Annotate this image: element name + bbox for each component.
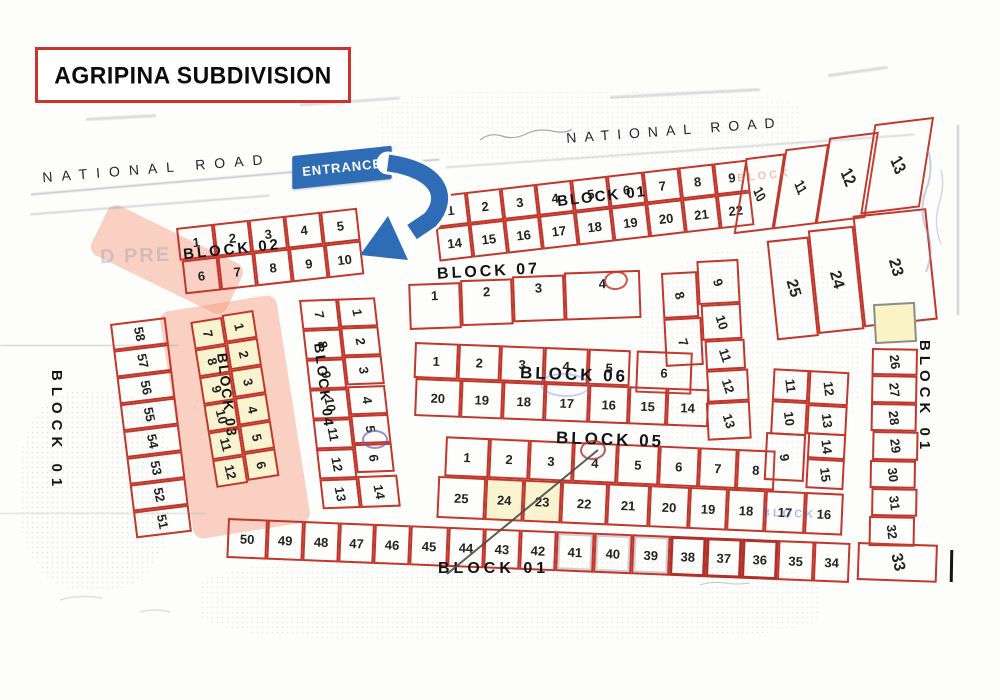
block01_south-lot-37: 37: [705, 537, 743, 578]
block05-lot-2: 2: [488, 438, 530, 480]
lot-number: 19: [701, 501, 716, 517]
block04-lot-14: 14: [357, 475, 401, 508]
lot-number: 10: [712, 313, 731, 331]
lot-number: 23: [535, 494, 550, 510]
block05-lot-11: 11: [772, 368, 810, 402]
lot-number: 36: [752, 552, 767, 568]
block01_east-lot-26: 26: [872, 348, 918, 376]
block05-lot-21: 21: [606, 483, 650, 527]
block05-lot-6: 6: [658, 446, 700, 488]
lot-number: 33: [887, 552, 909, 573]
lot-number: 2: [483, 284, 491, 299]
lot-number: 51: [154, 513, 172, 530]
lot-number: 8: [672, 289, 689, 301]
lot-number: 18: [738, 503, 753, 519]
block01_south-lot-47: 47: [338, 522, 375, 563]
block01_south-lot-49: 49: [266, 520, 304, 561]
block05-lot-22: 22: [560, 481, 608, 525]
block07-lot-3: 3: [512, 275, 566, 323]
lot-number: 3: [356, 366, 372, 375]
lot-number: 13: [819, 412, 836, 428]
block01_east-lot-30: 30: [870, 460, 916, 489]
block01_north-lot-2: 2: [466, 188, 504, 224]
lot-number: 54: [144, 433, 162, 450]
lot-number: 15: [817, 466, 834, 482]
block01_south-lot-33: 33: [857, 542, 938, 583]
lot-number: 14: [370, 483, 388, 499]
block01_south-lot-39: 39: [631, 534, 671, 575]
lot-number: 38: [680, 549, 695, 565]
lot-number: 1: [432, 353, 440, 368]
lot-number: 3: [240, 376, 256, 387]
lot-number: 42: [530, 543, 545, 559]
unlabeled-yellow-lot: [873, 302, 917, 344]
block02-lot-9: 9: [289, 245, 329, 283]
lot-number: 9: [727, 170, 736, 186]
lot-number: 2: [505, 451, 513, 466]
block01_north-lot-15: 15: [469, 220, 508, 258]
lot-number: 13: [331, 486, 349, 502]
block01_north-lot-18: 18: [575, 208, 615, 246]
lot-number: 16: [816, 506, 831, 522]
block06-lot-14: 14: [666, 388, 709, 428]
lot-number: 19: [474, 392, 489, 408]
block06-lot-13: 13: [706, 401, 752, 441]
lot-number: 2: [481, 198, 490, 214]
lot-number: 4: [359, 396, 375, 405]
lot-number: 20: [430, 390, 445, 406]
lot-number: 1: [431, 288, 439, 303]
block01_west-lot-51: 51: [133, 505, 192, 539]
lot-number: 27: [886, 381, 903, 397]
lot-number: 56: [137, 379, 155, 396]
map-title-box: AGRIPINA SUBDIVISION: [35, 47, 351, 103]
lot-number: 2: [353, 337, 369, 346]
block05-label: BLOCK 05: [556, 428, 665, 452]
watermark-fragment-gray: D PRE: [100, 244, 172, 269]
lot-number: 13: [719, 411, 738, 429]
block04-lot-2: 2: [340, 326, 381, 356]
block01_south-lot-46: 46: [373, 524, 411, 565]
lot-number: 4: [245, 404, 261, 415]
block05-lot-14: 14: [807, 432, 846, 460]
block01_south-lot-41: 41: [555, 531, 595, 572]
block07-lot-2: 2: [460, 278, 514, 326]
lot-number: 37: [716, 550, 731, 566]
block01_south-lot-48: 48: [302, 521, 340, 562]
block04-lot-7: 7: [299, 299, 340, 330]
lot-number: 25: [782, 277, 804, 299]
lot-number: 34: [824, 554, 839, 570]
block01_north-lot-8: 8: [678, 163, 716, 199]
block01_north-lot-20: 20: [646, 199, 686, 237]
block01_north-lot-7: 7: [643, 167, 682, 203]
block05-lot-10: 10: [770, 400, 808, 436]
block01_north-lot-3: 3: [501, 184, 539, 220]
lot-number: 10: [781, 410, 798, 426]
lot-number: 44: [458, 540, 473, 556]
block06-lot-16: 16: [588, 385, 629, 425]
lot-number: 11: [325, 426, 343, 441]
lot-number: 7: [312, 310, 328, 319]
block06-lot-15: 15: [628, 386, 667, 425]
block05-lot-20: 20: [648, 485, 690, 529]
lot-number: 7: [200, 328, 216, 339]
block06-lot-20: 20: [414, 378, 461, 418]
lot-number: 39: [643, 547, 658, 563]
lot-number: 32: [883, 523, 900, 539]
lot-number: 10: [337, 251, 353, 268]
lot-number: 30: [884, 466, 901, 482]
map-title: AGRIPINA SUBDIVISION: [54, 61, 332, 89]
lot-number: 23: [884, 257, 906, 279]
block01_east-lot-31: 31: [871, 488, 917, 517]
block01_north-lot-19: 19: [611, 203, 651, 241]
block01_east-lot-28: 28: [871, 403, 917, 432]
block05-lot-7: 7: [698, 447, 738, 489]
lot-number: 15: [481, 230, 497, 247]
block04-lot-13: 13: [319, 478, 360, 509]
lot-number: 17: [559, 395, 574, 411]
lot-number: 5: [336, 218, 345, 234]
lot-number: 1: [349, 308, 365, 317]
lot-number: 47: [349, 535, 364, 551]
lot-number: 55: [140, 406, 158, 423]
lot-number: 13: [886, 153, 909, 179]
block01_north-lot-14: 14: [436, 224, 474, 262]
lot-number: 26: [886, 354, 903, 370]
lot-number: 9: [710, 276, 727, 288]
lot-number: 1: [231, 321, 247, 332]
lot-number: 20: [662, 499, 677, 515]
block01_south-lot-38: 38: [669, 536, 707, 577]
lot-number: 29: [887, 438, 904, 454]
block06-lot-18: 18: [502, 381, 545, 421]
lot-number: 20: [658, 210, 674, 227]
block05-lot-23: 23: [522, 480, 562, 524]
lot-number: 12: [719, 376, 738, 394]
lot-number: 18: [587, 218, 603, 235]
block06-lot-2: 2: [458, 344, 501, 382]
block01_east-lot-27: 27: [871, 375, 917, 404]
lot-number: 2: [475, 355, 483, 370]
block06-lot-8: 8: [661, 271, 699, 319]
block06-lot-12: 12: [706, 369, 750, 403]
block02-lot-5: 5: [320, 208, 360, 245]
lot-number: 6: [366, 453, 382, 462]
lot-number: 24: [497, 492, 512, 508]
block01_north-lot-16: 16: [504, 216, 543, 254]
lot-number: 40: [605, 546, 620, 562]
block06-lot-11: 11: [705, 339, 747, 371]
block01-east-label: BLOCK 01: [916, 340, 933, 454]
block05-lot-24: 24: [484, 478, 524, 522]
block02-lot-4: 4: [284, 212, 323, 249]
lot-number: 12: [328, 456, 346, 472]
lot-number: 14: [446, 234, 462, 251]
block06-lot-10: 10: [701, 303, 743, 341]
block01_east-lot-29: 29: [872, 431, 918, 461]
block01_south-lot-35: 35: [777, 540, 815, 581]
lot-number: 57: [134, 352, 152, 369]
purple-circle-marker-block04: [362, 430, 388, 449]
lot-number: 3: [547, 453, 555, 468]
block05-lot-9: 9: [764, 432, 806, 482]
lot-number: 4: [300, 222, 309, 238]
lot-number: 11: [716, 346, 735, 364]
lot-number: 46: [385, 537, 400, 553]
block01_north-lot-21: 21: [682, 195, 721, 233]
lot-number: 7: [675, 336, 692, 348]
lot-number: 45: [422, 538, 437, 554]
block06-lot-19: 19: [460, 380, 503, 420]
lot-number: 3: [515, 194, 524, 210]
lot-number: 12: [836, 165, 859, 191]
lot-number: 49: [278, 533, 293, 549]
lot-number: 6: [660, 365, 668, 380]
lot-number: 7: [658, 178, 667, 194]
block01_south-lot-36: 36: [741, 539, 779, 580]
block04-lot-4: 4: [347, 385, 388, 415]
lot-number: 11: [792, 176, 811, 197]
block02-lot-10: 10: [325, 241, 365, 279]
block06-lot-7: 7: [663, 317, 703, 367]
block05-lot-15: 15: [805, 458, 845, 490]
lot-number: 21: [693, 206, 709, 223]
lot-number: 52: [150, 486, 168, 503]
lot-number: 8: [693, 174, 702, 190]
lot-number: 21: [621, 497, 636, 513]
lot-number: 15: [640, 398, 655, 414]
block03-lot-12: 12: [212, 455, 248, 488]
block01_north-lot-17: 17: [539, 212, 579, 250]
block04-lot-1: 1: [337, 297, 378, 327]
lot-number: 17: [551, 222, 567, 239]
block01-south-label: BLOCK 01: [438, 560, 549, 578]
lot-number: 6: [197, 268, 206, 284]
block07-lot-1: 1: [408, 282, 462, 330]
lot-number: 35: [788, 553, 803, 569]
lot-number: 3: [535, 280, 543, 295]
block05-lot-13: 13: [806, 404, 848, 436]
scan-edge-line: [957, 125, 959, 315]
lot-number: 5: [249, 432, 265, 443]
watermark-fragment-blue: BLOCK: [762, 507, 816, 521]
lot-number: 9: [304, 256, 313, 272]
block01_east-lot-32: 32: [869, 516, 916, 547]
lot-number: 50: [240, 531, 255, 547]
lot-number: 31: [886, 494, 903, 510]
lot-number: 48: [314, 534, 329, 550]
lot-number: 7: [233, 264, 242, 280]
lot-number: 16: [516, 226, 532, 243]
lot-number: 14: [818, 438, 835, 454]
block07-lot-4: 4: [564, 270, 642, 321]
lot-number: 22: [577, 496, 592, 512]
lot-number: 11: [782, 377, 799, 392]
scale-tick-mark: [950, 550, 954, 582]
block04-lot-12: 12: [316, 448, 357, 479]
lot-number: 19: [622, 214, 638, 231]
lot-number: 8: [269, 260, 278, 276]
block03-lot-6: 6: [244, 448, 280, 481]
block05-lot-19: 19: [688, 487, 728, 531]
block01_south-lot-40: 40: [593, 533, 633, 574]
lot-number: 1: [446, 202, 455, 218]
block05-lot-1: 1: [444, 436, 490, 478]
lot-number: 1: [463, 450, 471, 465]
lot-number: 12: [221, 463, 239, 481]
lot-number: 9: [777, 453, 793, 462]
block05-lot-25: 25: [436, 476, 486, 520]
lot-number: 28: [885, 409, 902, 425]
lot-number: 6: [253, 459, 269, 470]
scanned-plat-page: 1234567891012345678914151617181920212210…: [0, 0, 1000, 700]
lot-number: 5: [634, 457, 642, 472]
lot-number: 6: [675, 459, 683, 474]
block05-lot-18: 18: [726, 489, 766, 533]
lot-number: 7: [714, 460, 722, 475]
lot-number: 18: [516, 393, 531, 409]
lot-number: 58: [131, 325, 149, 342]
block01_south-lot-34: 34: [813, 542, 851, 583]
lot-number: 41: [567, 544, 582, 560]
block04-lot-3: 3: [344, 355, 385, 385]
block06-lot-1: 1: [414, 342, 459, 380]
lot-number: 2: [236, 349, 252, 360]
lot-number: 16: [601, 397, 616, 413]
block01_south-lot-50: 50: [226, 518, 268, 560]
lot-number: 24: [825, 269, 847, 291]
lot-number: 12: [820, 380, 837, 396]
lot-number: 14: [680, 400, 695, 416]
entrance-banner-text: ENTRANCE: [301, 156, 382, 179]
block06-lot-9: 9: [696, 259, 740, 305]
block05-lot-12: 12: [808, 370, 850, 406]
lot-number: 53: [147, 459, 165, 476]
lot-number: 43: [494, 541, 509, 557]
lot-number: 25: [454, 490, 469, 506]
block01_north-lot-1: 1: [432, 192, 469, 228]
lot-number: 10: [750, 183, 769, 204]
lot-number: 8: [752, 462, 760, 477]
block01-west-label: BLOCK 01: [48, 370, 65, 492]
